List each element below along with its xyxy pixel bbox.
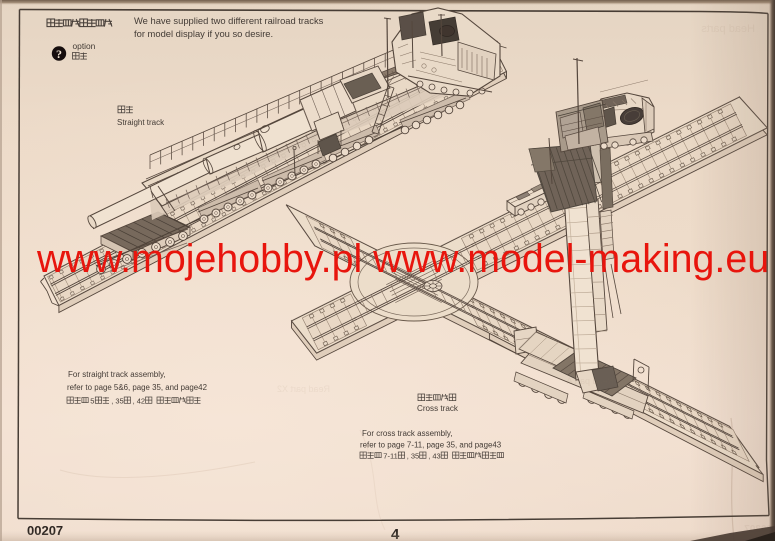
svg-text:5: 5 xyxy=(90,397,94,406)
svg-text:Read part A: Read part A xyxy=(566,376,614,386)
svg-text:For cross track assembly,: For cross track assembly, xyxy=(362,429,453,438)
svg-text:, 43: , 43 xyxy=(428,452,441,461)
svg-text:Read part X2: Read part X2 xyxy=(277,384,330,394)
svg-text:refer to page 7-11, page 35, a: refer to page 7-11, page 35, and page43 xyxy=(360,441,502,450)
svg-text:option: option xyxy=(73,41,96,51)
svg-text:For straight track assembly,: For straight track assembly, xyxy=(68,370,166,379)
svg-text:Cross track: Cross track xyxy=(417,404,459,413)
svg-text:?: ? xyxy=(56,47,62,61)
svg-text:, 42: , 42 xyxy=(133,397,146,406)
svg-text:refer to page 5&6, page 35, an: refer to page 5&6, page 35, and page42 xyxy=(67,383,207,392)
svg-text:7-11: 7-11 xyxy=(383,452,397,461)
svg-text:Straight track: Straight track xyxy=(117,118,165,127)
svg-text:for model display if you so de: for model display if you so desire. xyxy=(134,28,273,39)
svg-text:, 35: , 35 xyxy=(407,452,420,461)
svg-text:, 35: , 35 xyxy=(111,397,124,406)
svg-text:We have supplied two different: We have supplied two different railroad … xyxy=(134,15,324,26)
